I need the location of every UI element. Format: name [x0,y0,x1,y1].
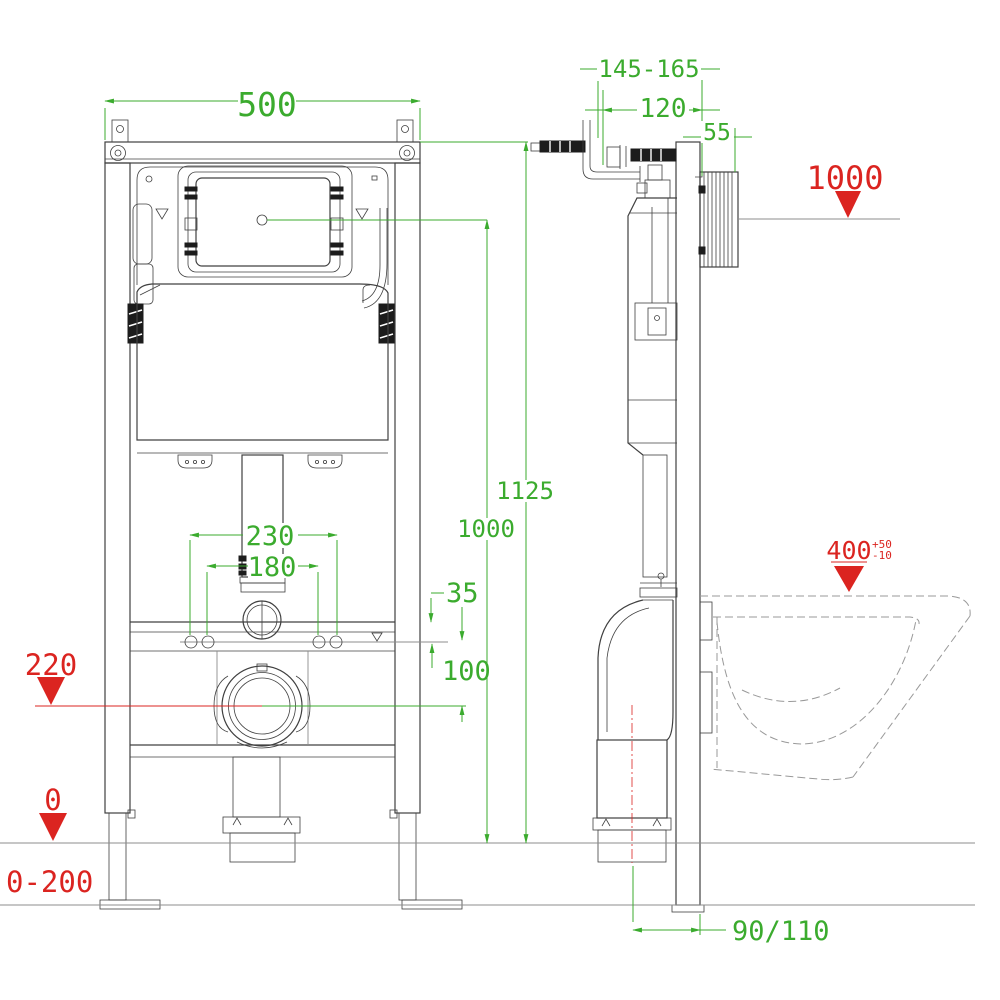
level-label-220: 220 [25,648,77,682]
drain-outlet [214,664,310,862]
level-marker-0: 0 [39,783,67,841]
top-rail [105,142,420,163]
cistern-side-profile [628,165,677,455]
front-view [100,120,462,909]
dim-label-500: 500 [237,85,297,124]
level-mark-left [156,209,168,219]
dim-label-1125: 1125 [496,477,554,505]
dim-label-145-165: 145-165 [598,55,699,83]
panel-button [257,215,267,225]
plate-housing-sleeve [695,170,738,267]
access-panel [146,166,377,277]
level-mark-right [356,209,368,219]
dim-label-1000-green: 1000 [457,515,515,543]
cross-rails [130,622,448,757]
toilet-bowl-outline [700,596,970,780]
tank-clamps [128,304,394,343]
dim-label-100: 100 [442,656,491,687]
dim-label-55: 55 [703,120,731,146]
level-label-400: 400 [826,536,871,565]
dim-offset-100: 100 [262,644,491,722]
red-level-markers: 220 0 0-200 1000 400 +50 -10 [6,159,892,899]
dim-plate-depth: 55 [683,120,752,172]
dim-drain-offset: 90/110 [633,866,830,947]
dim-label-230: 230 [246,521,295,552]
technical-drawing-page: 500 230 180 35 100 [0,0,1000,1000]
side-drain-assembly [593,455,677,863]
side-view [531,120,970,912]
corner-bolts [111,146,415,161]
dim-frame-width: 500 [105,85,420,140]
level-marker-400: 400 +50 -10 [826,536,891,592]
dim-offset-35: 35 [431,578,479,640]
level-label-0: 0 [44,783,61,817]
bowl-wall-connections [700,602,712,733]
level-marker-220: 220 [25,648,77,705]
level-label-0-200: 0-200 [6,865,93,899]
side-post [676,142,700,905]
dim-label-180: 180 [248,552,297,583]
level-label-400-tol-minus: -10 [872,549,892,562]
level-marker-1000-red: 1000 [806,159,883,218]
cistern-tank [137,284,388,468]
dim-label-35: 35 [446,578,479,609]
dim-label-90-110: 90/110 [732,916,830,947]
toilet-frame-drawing: 500 230 180 35 100 [0,0,1000,1000]
dim-label-120: 120 [640,94,687,124]
panel-clips [185,187,343,255]
green-dimensions: 500 230 180 35 100 [105,55,830,947]
inner-frame [137,167,388,285]
